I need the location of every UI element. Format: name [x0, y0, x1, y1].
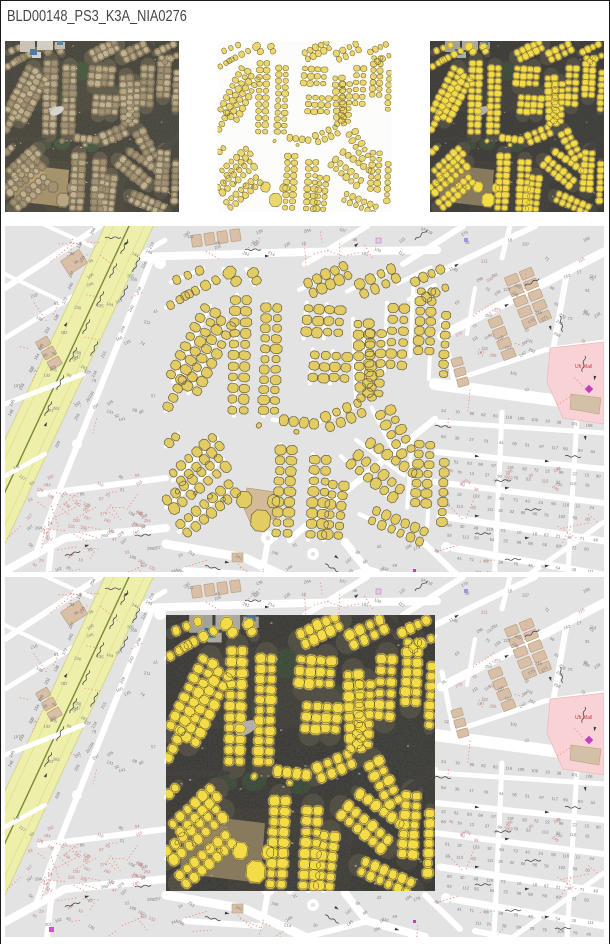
svg-text:BLD00148_PS3_K3A_NIA0276: BLD00148_PS3_K3A_NIA0276 — [7, 8, 187, 26]
